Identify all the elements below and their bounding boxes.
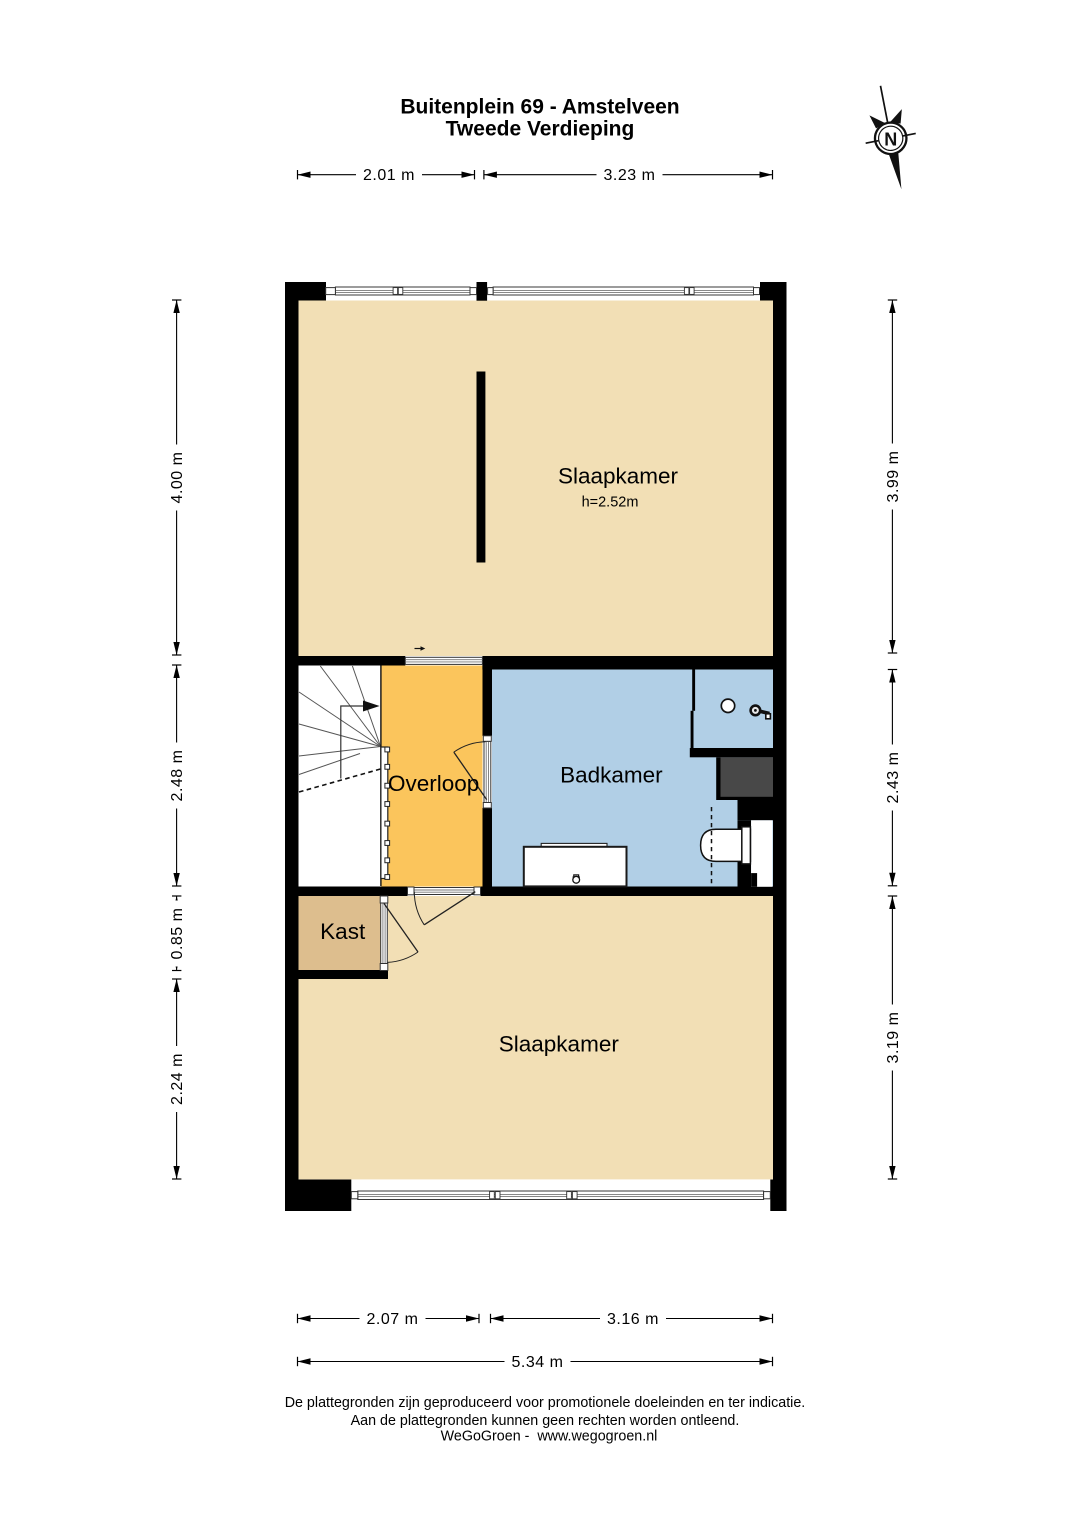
svg-text:Kast: Kast — [320, 919, 366, 944]
svg-text:3.19 m: 3.19 m — [885, 1012, 902, 1064]
svg-text:4.00 m: 4.00 m — [169, 452, 186, 504]
svg-text:N: N — [884, 129, 897, 149]
svg-text:0.85 m: 0.85 m — [169, 908, 186, 960]
svg-text:h=2.52m: h=2.52m — [582, 495, 639, 511]
svg-text:Tweede Verdieping: Tweede Verdieping — [446, 118, 635, 141]
svg-text:De plattegronden zijn geproduc: De plattegronden zijn geproduceerd voor … — [285, 1395, 806, 1411]
svg-text:2.24 m: 2.24 m — [169, 1053, 186, 1105]
svg-text:2.07 m: 2.07 m — [367, 1311, 419, 1328]
svg-text:2.01 m: 2.01 m — [363, 167, 415, 184]
svg-text:Overloop: Overloop — [388, 771, 479, 796]
svg-text:5.34 m: 5.34 m — [512, 1354, 564, 1371]
svg-text:Slaapkamer: Slaapkamer — [499, 1032, 620, 1057]
svg-text:Buitenplein 69 - Amstelveen: Buitenplein 69 - Amstelveen — [400, 96, 679, 119]
svg-text:3.16 m: 3.16 m — [607, 1311, 659, 1328]
svg-text:WeGoGroen - www.wegogroen.nl: WeGoGroen - www.wegogroen.nl — [441, 1428, 658, 1444]
svg-text:Aan de plattegronden kunnen ge: Aan de plattegronden kunnen geen rechten… — [351, 1413, 740, 1429]
svg-text:Slaapkamer: Slaapkamer — [558, 464, 679, 489]
svg-text:3.23 m: 3.23 m — [604, 167, 656, 184]
svg-text:3.99 m: 3.99 m — [885, 451, 902, 503]
svg-text:2.43 m: 2.43 m — [885, 752, 902, 804]
svg-text:2.48 m: 2.48 m — [169, 750, 186, 802]
svg-text:Badkamer: Badkamer — [560, 763, 663, 788]
